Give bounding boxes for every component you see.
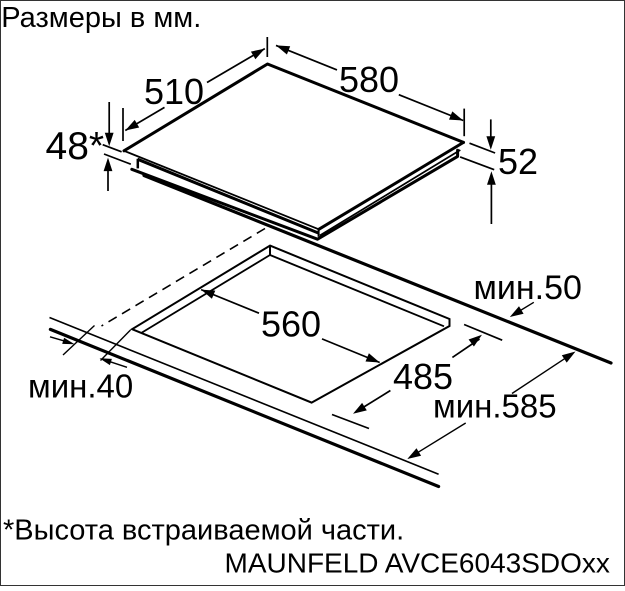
svg-text:*Высота встраиваемой части.: *Высота встраиваемой части. — [3, 515, 404, 547]
svg-text:52: 52 — [498, 141, 538, 182]
svg-text:560: 560 — [261, 304, 321, 345]
svg-text:48*: 48* — [46, 125, 105, 168]
svg-text:Размеры в мм.: Размеры в мм. — [1, 2, 201, 34]
svg-text:мин.585: мин.585 — [433, 388, 557, 425]
svg-text:мин.40: мин.40 — [28, 368, 133, 405]
svg-text:510: 510 — [144, 71, 204, 112]
svg-text:MAUNFELD AVCE6043SDOxx: MAUNFELD AVCE6043SDOxx — [225, 548, 610, 579]
svg-text:мин.50: мин.50 — [474, 269, 582, 307]
svg-text:580: 580 — [339, 59, 399, 100]
